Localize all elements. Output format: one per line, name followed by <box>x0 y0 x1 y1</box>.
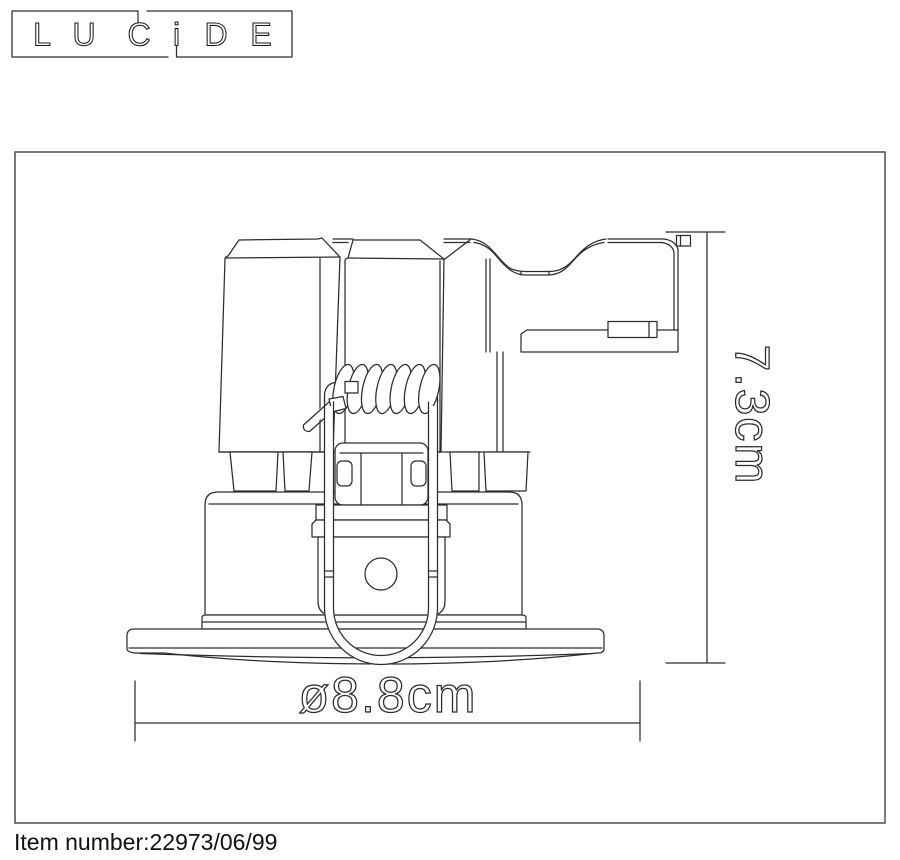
cable-entry-dip-inner <box>474 243 604 276</box>
page: L U C i D E <box>0 0 900 860</box>
height-dimension-label: 7.3cm <box>725 345 778 486</box>
logo-letter-u: U <box>72 17 95 53</box>
logo-letter-c: C <box>127 17 150 53</box>
housing-left-edge <box>486 259 490 352</box>
cable-entry-dip-outer <box>472 239 606 272</box>
lucide-logo: L U C i D E <box>12 11 292 57</box>
housing-right-edge <box>662 239 678 352</box>
step-ring <box>202 615 526 629</box>
dimension-height: 7.3cm <box>666 232 778 663</box>
center-plate <box>318 537 445 615</box>
terminal-arm <box>521 322 678 353</box>
spring-axle-block <box>345 382 358 394</box>
diameter-dimension-label: ø8.8cm <box>299 667 478 723</box>
logo-letter-i: i <box>173 17 180 53</box>
logo-letter-d: D <box>204 17 227 53</box>
connection-box-housing <box>445 236 691 353</box>
housing-top-tab <box>677 236 691 247</box>
height-dimension-line <box>666 232 725 663</box>
item-number-label: Item number:22973/06/99 <box>14 829 277 855</box>
lamp-socket-block <box>316 443 447 520</box>
logo-letter-l: L <box>33 17 51 53</box>
spotlight-technical-sheet: L U C i D E <box>0 0 900 860</box>
dimension-diameter: ø8.8cm <box>135 667 640 741</box>
housing-support-leg <box>497 352 503 452</box>
fixture-drawing <box>127 236 691 665</box>
plate-hole <box>365 558 397 590</box>
logo-letter-e: E <box>250 17 271 53</box>
terminal-block <box>608 322 657 338</box>
